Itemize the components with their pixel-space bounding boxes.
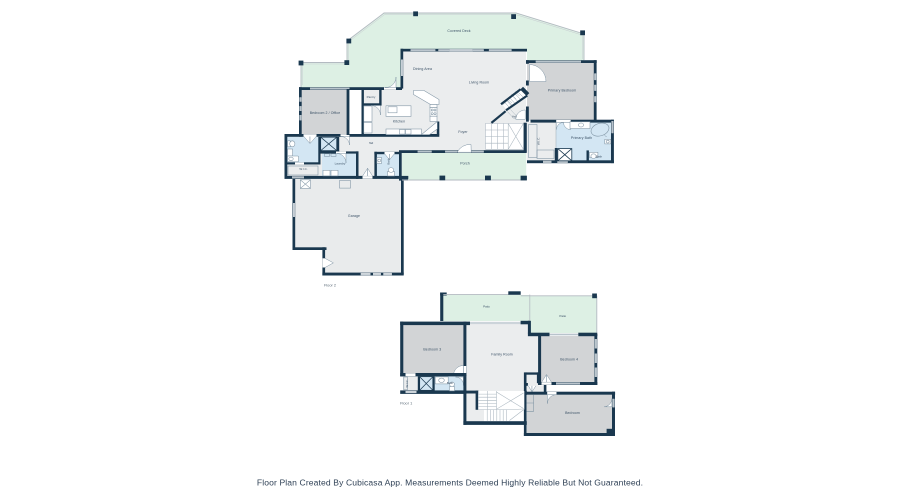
svg-text:W.I.C.: W.I.C. (299, 167, 307, 171)
svg-text:Bath: Bath (596, 154, 603, 158)
svg-text:Patio: Patio (483, 304, 490, 308)
svg-text:Floor 2: Floor 2 (324, 282, 336, 287)
svg-text:W.I.C.: W.I.C. (537, 137, 541, 145)
svg-text:Primary Bedroom: Primary Bedroom (548, 89, 576, 93)
svg-text:Bath: Bath (447, 381, 454, 385)
svg-text:Primary Bath: Primary Bath (571, 136, 592, 140)
svg-text:Floor Plan Created By Cubicasa: Floor Plan Created By Cubicasa App. Meas… (257, 477, 643, 487)
svg-text:Covered Deck: Covered Deck (447, 29, 470, 33)
svg-text:Patio: Patio (559, 314, 566, 318)
svg-text:Bath: Bath (387, 158, 391, 165)
svg-text:Porch: Porch (460, 162, 470, 166)
svg-text:Bedroom: Bedroom (565, 411, 580, 415)
svg-text:Family Room: Family Room (491, 352, 513, 356)
svg-text:Laundry: Laundry (335, 162, 346, 166)
svg-text:Dining Area: Dining Area (413, 67, 432, 71)
svg-text:Hall: Hall (512, 115, 517, 118)
svg-text:Pantry: Pantry (367, 95, 376, 99)
svg-text:Floor 1: Floor 1 (400, 400, 412, 405)
svg-text:Bedroom 3: Bedroom 3 (423, 347, 441, 351)
svg-text:Bedroom 2 / Office: Bedroom 2 / Office (310, 111, 341, 115)
svg-text:Garage: Garage (348, 214, 360, 218)
svg-text:Living Room: Living Room (469, 81, 489, 85)
svg-text:Hall: Hall (369, 142, 374, 145)
svg-text:Foyer: Foyer (458, 130, 468, 134)
svg-text:W.I.C.: W.I.C. (405, 379, 409, 387)
svg-text:Bedroom 4: Bedroom 4 (560, 357, 578, 361)
svg-text:Kitchen: Kitchen (393, 119, 405, 123)
